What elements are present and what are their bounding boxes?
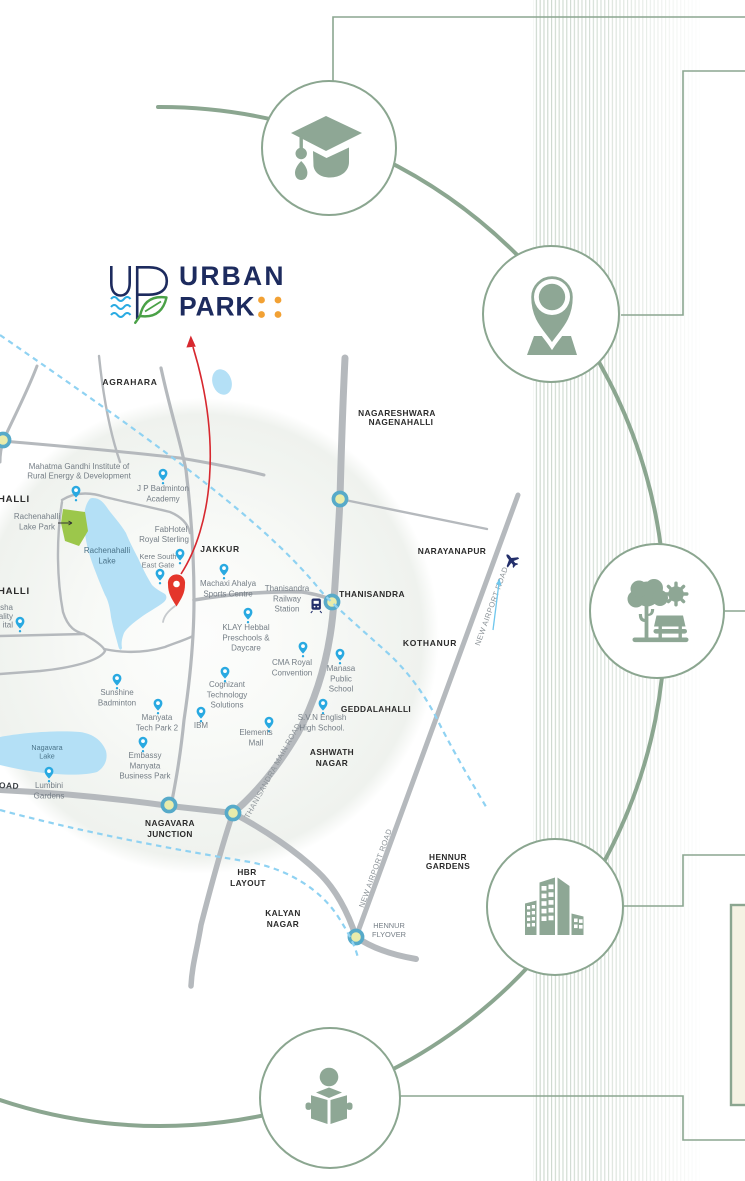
svg-text:Technology: Technology: [207, 690, 247, 699]
svg-text:J P Badminton: J P Badminton: [137, 484, 189, 493]
svg-text:ital: ital: [3, 621, 13, 630]
svg-text:AGRAHARA: AGRAHARA: [102, 377, 157, 387]
svg-text:Railway: Railway: [273, 594, 301, 603]
svg-text:OAD: OAD: [0, 780, 19, 791]
svg-text:Elements: Elements: [239, 728, 272, 737]
svg-text:Mall: Mall: [249, 738, 264, 747]
svg-text:Rachenahalli: Rachenahalli: [84, 546, 130, 555]
svg-text:Machaxi Ahalya: Machaxi Ahalya: [200, 579, 257, 588]
svg-text:IBM: IBM: [194, 721, 209, 730]
svg-text:HALLI: HALLI: [0, 494, 30, 505]
svg-text:KALYAN: KALYAN: [265, 908, 300, 918]
svg-text:Lake: Lake: [39, 751, 55, 760]
svg-text:sha: sha: [0, 603, 13, 612]
svg-text:JUNCTION: JUNCTION: [147, 829, 193, 839]
svg-text:Convention: Convention: [272, 668, 312, 677]
svg-text:KLAY Hebbal: KLAY Hebbal: [222, 623, 270, 632]
svg-text:Gardens: Gardens: [34, 791, 65, 800]
svg-text:Business Park: Business Park: [119, 772, 171, 781]
svg-text:NAGAVARA: NAGAVARA: [145, 818, 195, 828]
svg-text:Sports Centre: Sports Centre: [203, 589, 253, 598]
svg-text:FabHotel: FabHotel: [155, 525, 188, 534]
svg-text:Manasa: Manasa: [327, 664, 356, 673]
svg-text:LAYOUT: LAYOUT: [230, 878, 266, 888]
svg-text:Thanisandra: Thanisandra: [265, 584, 310, 593]
svg-text:Lake Park: Lake Park: [19, 522, 56, 531]
svg-text:Rachenahalli: Rachenahalli: [14, 512, 60, 521]
svg-text:Station: Station: [275, 605, 300, 614]
svg-text:GARDENS: GARDENS: [426, 861, 470, 871]
svg-text:CMA Royal: CMA Royal: [272, 658, 312, 667]
svg-text:Lumbini: Lumbini: [35, 781, 63, 790]
svg-text:GEDDALAHALLI: GEDDALAHALLI: [341, 704, 411, 714]
svg-text:Rural Energy & Development: Rural Energy & Development: [27, 472, 131, 481]
svg-text:Public: Public: [330, 674, 352, 683]
svg-text:THANISANDRA: THANISANDRA: [339, 589, 405, 599]
svg-text:Manyata: Manyata: [130, 761, 161, 770]
svg-text:Tech Park 2: Tech Park 2: [136, 723, 179, 732]
svg-text:ality: ality: [0, 612, 13, 621]
svg-text:Academy: Academy: [146, 494, 179, 503]
svg-text:Royal Sterling: Royal Sterling: [139, 535, 189, 544]
svg-text:School: School: [329, 685, 354, 694]
svg-text:Manyata: Manyata: [142, 713, 173, 722]
svg-text:Sunshine: Sunshine: [100, 688, 134, 697]
svg-text:NEW AIRPORT ROAD: NEW AIRPORT ROAD: [357, 827, 394, 908]
svg-text:Badminton: Badminton: [98, 698, 136, 707]
svg-text:NARAYANAPUR: NARAYANAPUR: [418, 546, 486, 556]
svg-text:ASHWATH: ASHWATH: [310, 747, 354, 757]
svg-text:PARK: PARK: [179, 292, 255, 322]
svg-text:FLYOVER: FLYOVER: [372, 930, 406, 939]
svg-text:S.V.N English: S.V.N English: [298, 713, 347, 722]
svg-text:Cognizant: Cognizant: [209, 680, 246, 689]
svg-text:Preschools &: Preschools &: [222, 633, 270, 642]
svg-text:KOTHANUR: KOTHANUR: [403, 638, 457, 648]
svg-text:HALLI: HALLI: [0, 586, 30, 597]
svg-text:NAGAR: NAGAR: [267, 919, 299, 929]
svg-text:Mahatma Gandhi Institute of: Mahatma Gandhi Institute of: [29, 462, 130, 471]
svg-text:High School.: High School.: [299, 723, 344, 732]
svg-text:HENNUR: HENNUR: [373, 921, 405, 930]
svg-text:NAGENAHALLI: NAGENAHALLI: [369, 417, 434, 427]
svg-text:Lake: Lake: [98, 556, 116, 565]
svg-text:Daycare: Daycare: [231, 644, 261, 653]
svg-text:Solutions: Solutions: [211, 701, 244, 710]
svg-text:JAKKUR: JAKKUR: [200, 544, 240, 554]
svg-text:URBAN: URBAN: [179, 261, 286, 291]
svg-text:HBR: HBR: [237, 867, 256, 877]
svg-text:NAGAR: NAGAR: [316, 758, 348, 768]
svg-text:Embassy: Embassy: [129, 751, 162, 760]
svg-text:East Gate: East Gate: [142, 561, 175, 570]
